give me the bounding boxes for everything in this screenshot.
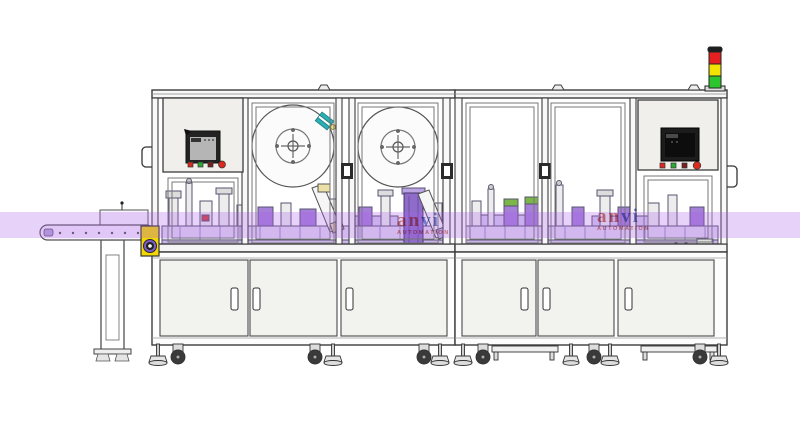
left-side-handle bbox=[142, 147, 152, 167]
hmi-screen-left bbox=[184, 129, 220, 163]
door-handle bbox=[543, 288, 550, 310]
base-cabinet-right bbox=[455, 252, 727, 345]
machine-illustration bbox=[0, 0, 800, 438]
hmi-panel-right bbox=[638, 100, 718, 170]
door-handle bbox=[625, 288, 632, 310]
label-reel-right bbox=[358, 107, 438, 187]
signal-tower bbox=[705, 47, 725, 91]
product-flow-highlight-band bbox=[0, 212, 800, 238]
door-handle bbox=[253, 288, 260, 310]
hmi-panel-left bbox=[163, 98, 243, 172]
conveyor-stand bbox=[101, 240, 124, 350]
tower-light-yellow bbox=[709, 64, 721, 76]
tower-cap bbox=[708, 47, 722, 52]
right-side-handle bbox=[727, 166, 737, 187]
door-handle bbox=[521, 288, 528, 310]
emergency-stop-button bbox=[693, 162, 701, 170]
hmi-screen-right bbox=[661, 128, 699, 161]
machine-feet bbox=[149, 344, 728, 366]
cabinet-door bbox=[341, 260, 447, 336]
emergency-stop-button bbox=[219, 161, 226, 168]
base-cabinet-left bbox=[152, 252, 455, 345]
door-handle bbox=[346, 288, 353, 310]
sensor-icon bbox=[120, 201, 123, 204]
door-handle bbox=[231, 288, 238, 310]
tower-light-red bbox=[709, 52, 721, 64]
machine-scene: anvi AUTOMATION anvi AUTOMATION bbox=[0, 0, 800, 438]
tower-light-green bbox=[709, 76, 721, 88]
cabinet-door bbox=[250, 260, 337, 336]
